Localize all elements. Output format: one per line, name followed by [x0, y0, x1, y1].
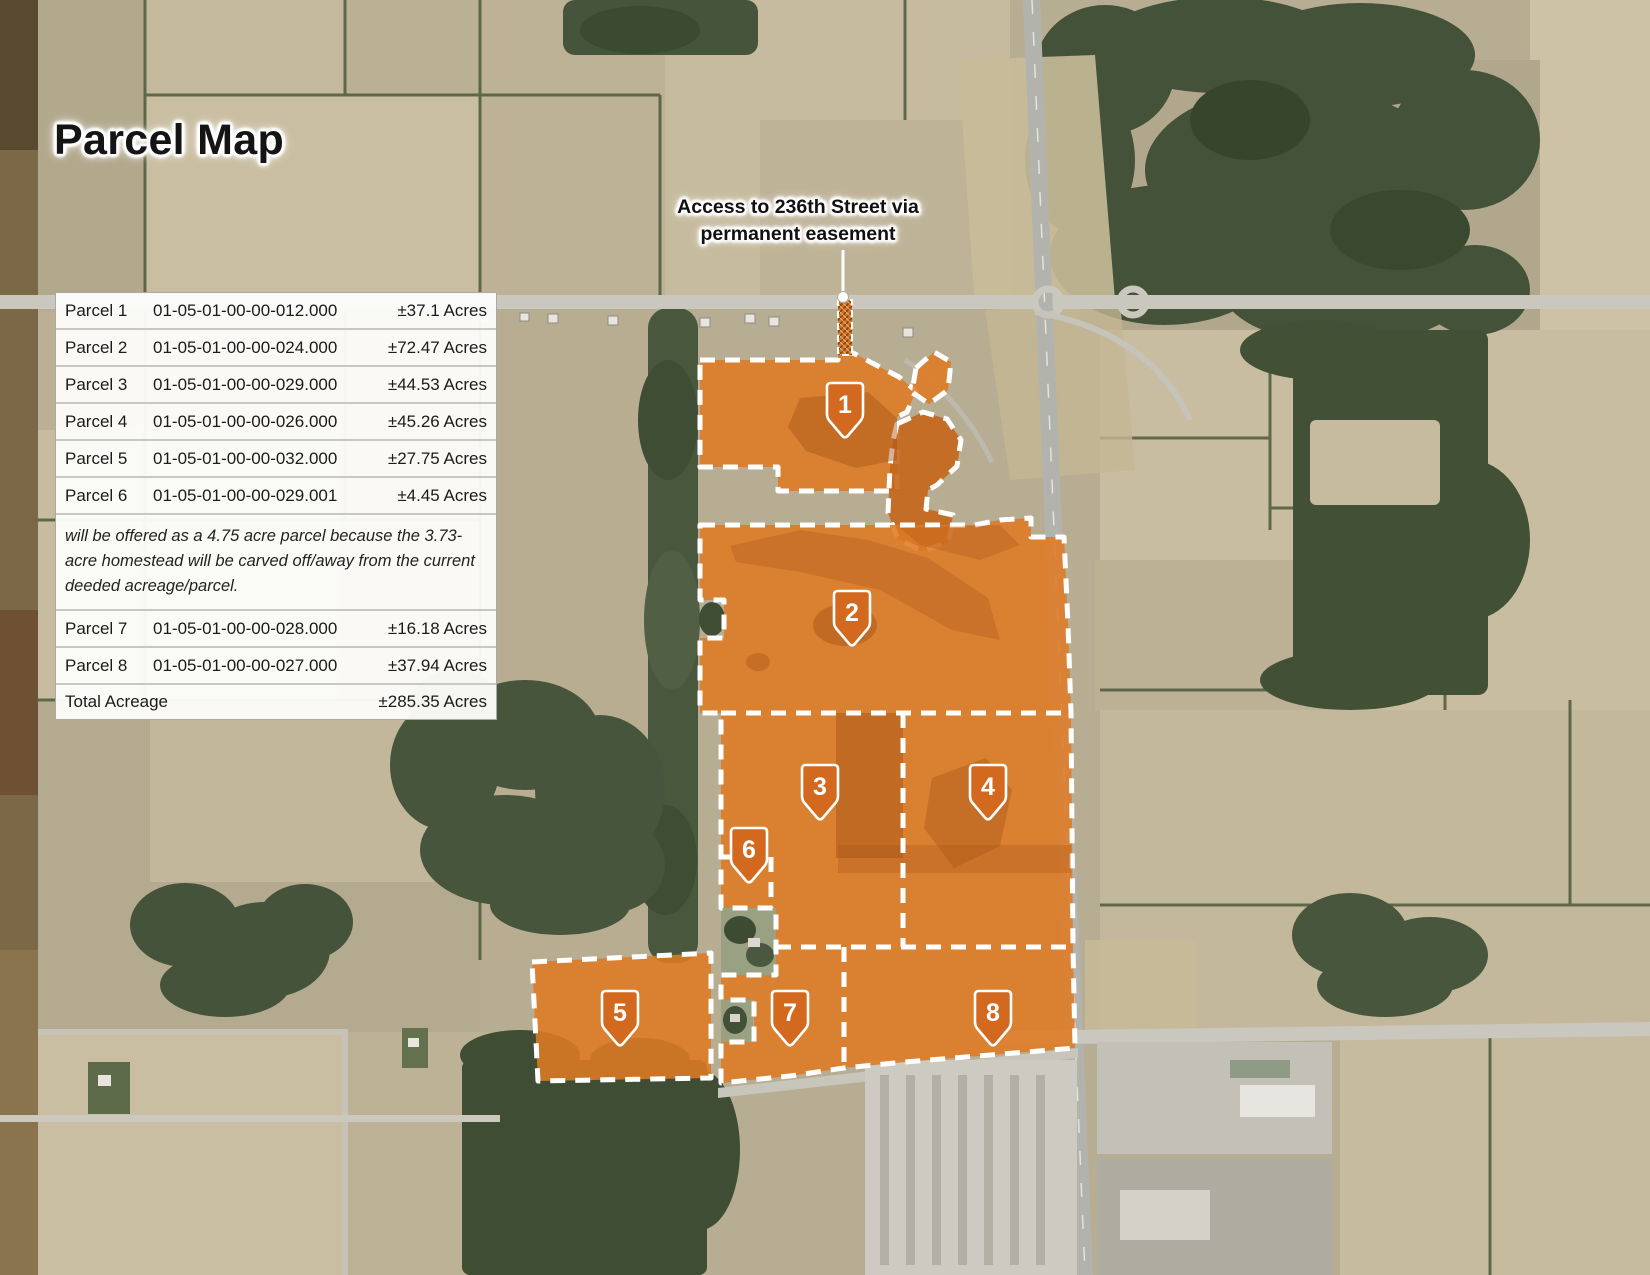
table-row-parcel-3: Parcel 3 01-05-01-00-00-029.000 ±44.53 A…: [56, 365, 496, 402]
easement-annotation-line2: permanent easement: [626, 221, 970, 248]
easement-annotation-line1: Access to 236th Street via: [626, 194, 970, 221]
parcel-acres: ±27.75 Acres: [388, 449, 487, 469]
parcel-id: 01-05-01-00-00-029.000: [153, 375, 388, 395]
parcel-label: Parcel 5: [65, 449, 153, 469]
parcel-id: 01-05-01-00-00-028.000: [153, 619, 388, 639]
table-row-total: Total Acreage ±285.35 Acres: [56, 683, 496, 719]
parcel-id: 01-05-01-00-00-026.000: [153, 412, 388, 432]
total-acres: ±285.35 Acres: [378, 692, 487, 712]
parcel-acres: ±16.18 Acres: [388, 619, 487, 639]
parcel-label: Parcel 6: [65, 486, 153, 506]
svg-text:2: 2: [845, 599, 859, 627]
parcel-acres: ±37.1 Acres: [397, 301, 487, 321]
table-row-parcel-2: Parcel 2 01-05-01-00-00-024.000 ±72.47 A…: [56, 328, 496, 365]
parcel-label: Parcel 7: [65, 619, 153, 639]
table-row-parcel-5: Parcel 5 01-05-01-00-00-032.000 ±27.75 A…: [56, 439, 496, 476]
easement-dot: [838, 292, 849, 303]
svg-text:4: 4: [981, 773, 995, 801]
parcel-6-note: will be offered as a 4.75 acre parcel be…: [56, 513, 496, 609]
easement-strip: [838, 300, 852, 355]
parcel-map-page: 1 2 3 4 5 6 7 8 Parcel Map: [0, 0, 1650, 1275]
svg-text:8: 8: [986, 999, 1000, 1027]
salvage-yard: [865, 1060, 1077, 1275]
parcel-id: 01-05-01-00-00-024.000: [153, 338, 388, 358]
svg-text:3: 3: [813, 773, 827, 801]
parcel-acres: ±72.47 Acres: [388, 338, 487, 358]
table-row-parcel-1: Parcel 1 01-05-01-00-00-012.000 ±37.1 Ac…: [56, 293, 496, 328]
parcel-id: 01-05-01-00-00-032.000: [153, 449, 388, 469]
total-label: Total Acreage: [65, 692, 378, 712]
page-title: Parcel Map: [54, 116, 284, 165]
parcel-id: 01-05-01-00-00-029.001: [153, 486, 397, 506]
svg-text:6: 6: [742, 836, 756, 864]
parcel-acres: ±44.53 Acres: [388, 375, 487, 395]
easement-annotation: Access to 236th Street via permanent eas…: [626, 194, 970, 249]
parcel-label: Parcel 1: [65, 301, 153, 321]
parcel-acres: ±4.45 Acres: [397, 486, 487, 506]
parcel-id: 01-05-01-00-00-027.000: [153, 656, 388, 676]
parcel-acres: ±37.94 Acres: [388, 656, 487, 676]
parcel-id: 01-05-01-00-00-012.000: [153, 301, 397, 321]
parcel-label: Parcel 2: [65, 338, 153, 358]
parcel-label: Parcel 8: [65, 656, 153, 676]
table-row-parcel-8: Parcel 8 01-05-01-00-00-027.000 ±37.94 A…: [56, 646, 496, 683]
table-row-parcel-4: Parcel 4 01-05-01-00-00-026.000 ±45.26 A…: [56, 402, 496, 439]
svg-text:1: 1: [838, 391, 852, 419]
table-row-parcel-6: Parcel 6 01-05-01-00-00-029.001 ±4.45 Ac…: [56, 476, 496, 513]
parcel-table: Parcel 1 01-05-01-00-00-012.000 ±37.1 Ac…: [55, 292, 497, 720]
parcel-acres: ±45.26 Acres: [388, 412, 487, 432]
svg-text:7: 7: [783, 999, 797, 1027]
svg-text:5: 5: [613, 999, 627, 1027]
parcel-label: Parcel 4: [65, 412, 153, 432]
table-row-parcel-7: Parcel 7 01-05-01-00-00-028.000 ±16.18 A…: [56, 609, 496, 646]
parcel-label: Parcel 3: [65, 375, 153, 395]
